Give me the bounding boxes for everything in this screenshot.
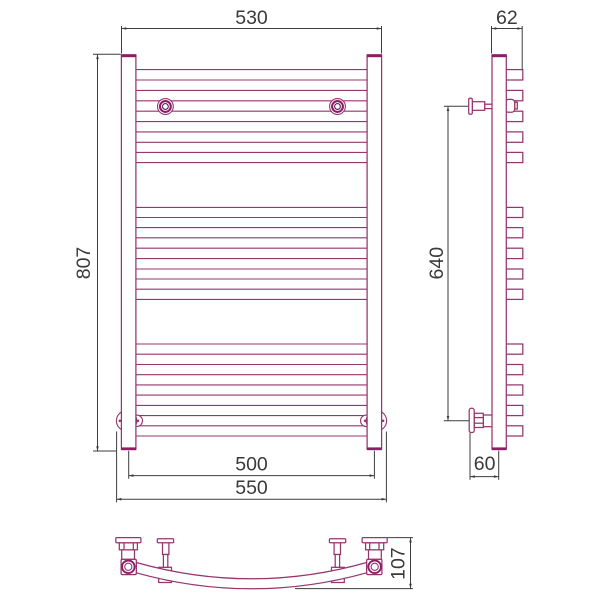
svg-text:550: 550 [235, 477, 268, 499]
svg-text:107: 107 [388, 547, 410, 580]
svg-text:60: 60 [474, 453, 496, 475]
svg-text:807: 807 [73, 247, 95, 280]
svg-text:530: 530 [235, 7, 268, 29]
svg-text:640: 640 [426, 247, 448, 280]
svg-text:500: 500 [235, 454, 268, 476]
svg-text:62: 62 [496, 7, 518, 29]
